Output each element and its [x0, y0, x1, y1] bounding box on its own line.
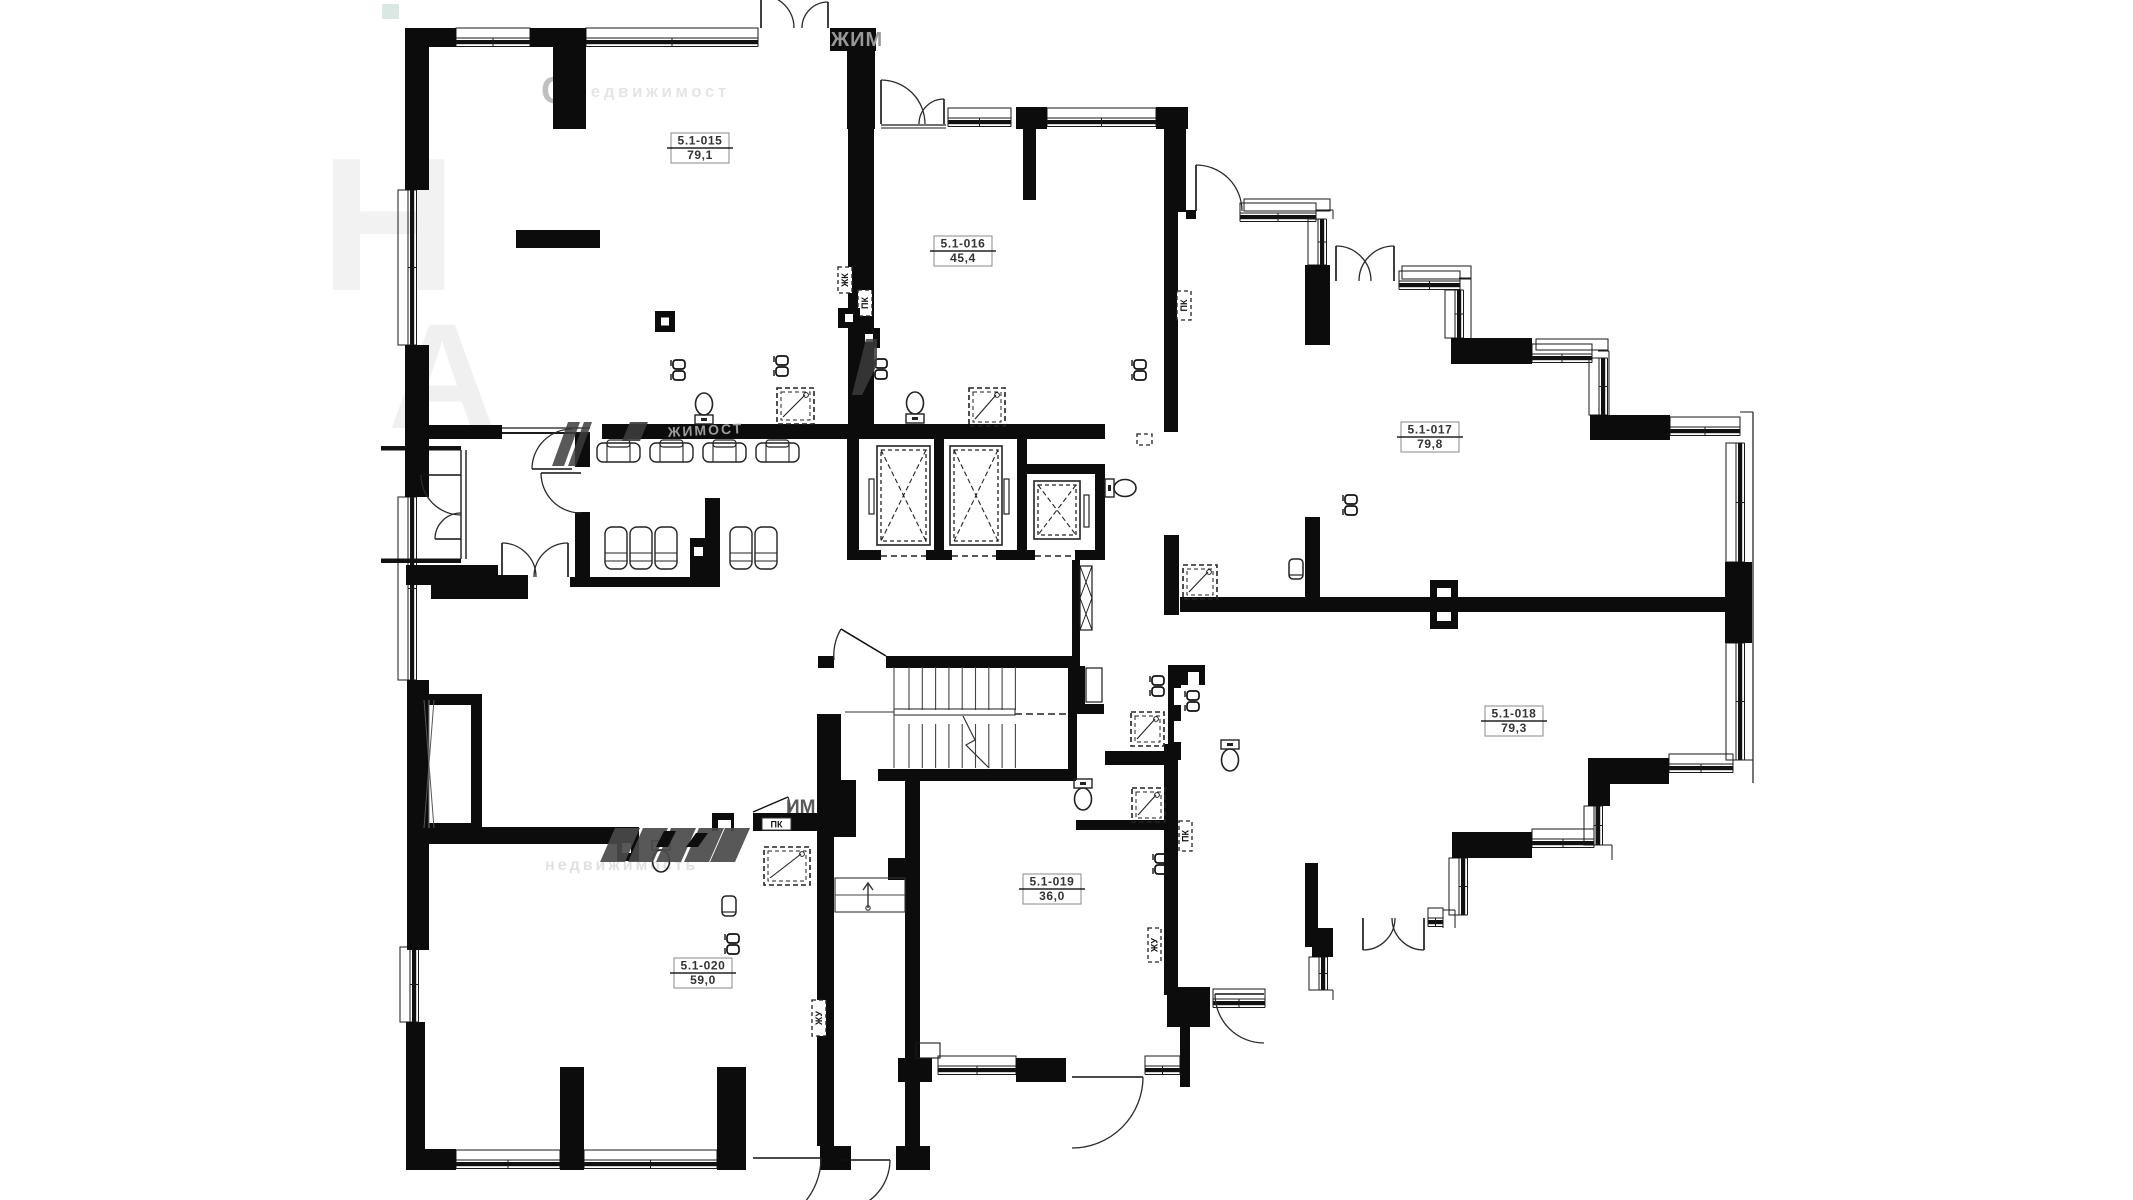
svg-text:59,0: 59,0: [690, 973, 716, 987]
svg-text:ПК: ПК: [771, 820, 783, 830]
svg-text:ЖИМ: ЖИМ: [830, 29, 883, 51]
svg-text:36,0: 36,0: [1039, 889, 1065, 903]
svg-text:5.1-018: 5.1-018: [1492, 707, 1537, 721]
svg-text:ЖК: ЖК: [840, 273, 850, 288]
svg-text:ПК: ПК: [1179, 299, 1189, 311]
svg-text:5.1-015: 5.1-015: [678, 134, 723, 148]
svg-text:5.1-017: 5.1-017: [1408, 423, 1453, 437]
svg-text:ПК: ПК: [1181, 830, 1191, 842]
svg-text:5.1-020: 5.1-020: [681, 959, 726, 973]
svg-text:79,1: 79,1: [687, 148, 713, 162]
svg-text:79,3: 79,3: [1501, 721, 1527, 735]
svg-text:ПК: ПК: [860, 297, 870, 309]
svg-text:5.1-019: 5.1-019: [1030, 875, 1075, 889]
svg-text:Н: Н: [320, 119, 457, 331]
svg-text:недвижимост: недвижимост: [577, 82, 730, 101]
svg-text:45,4: 45,4: [950, 251, 976, 265]
svg-text:ИМ: ИМ: [786, 797, 815, 818]
svg-text:5.1-016: 5.1-016: [941, 237, 986, 251]
svg-text:ЖУ: ЖУ: [1150, 938, 1160, 953]
svg-text:ЖУ: ЖУ: [814, 1011, 824, 1026]
svg-text:79,8: 79,8: [1417, 437, 1443, 451]
